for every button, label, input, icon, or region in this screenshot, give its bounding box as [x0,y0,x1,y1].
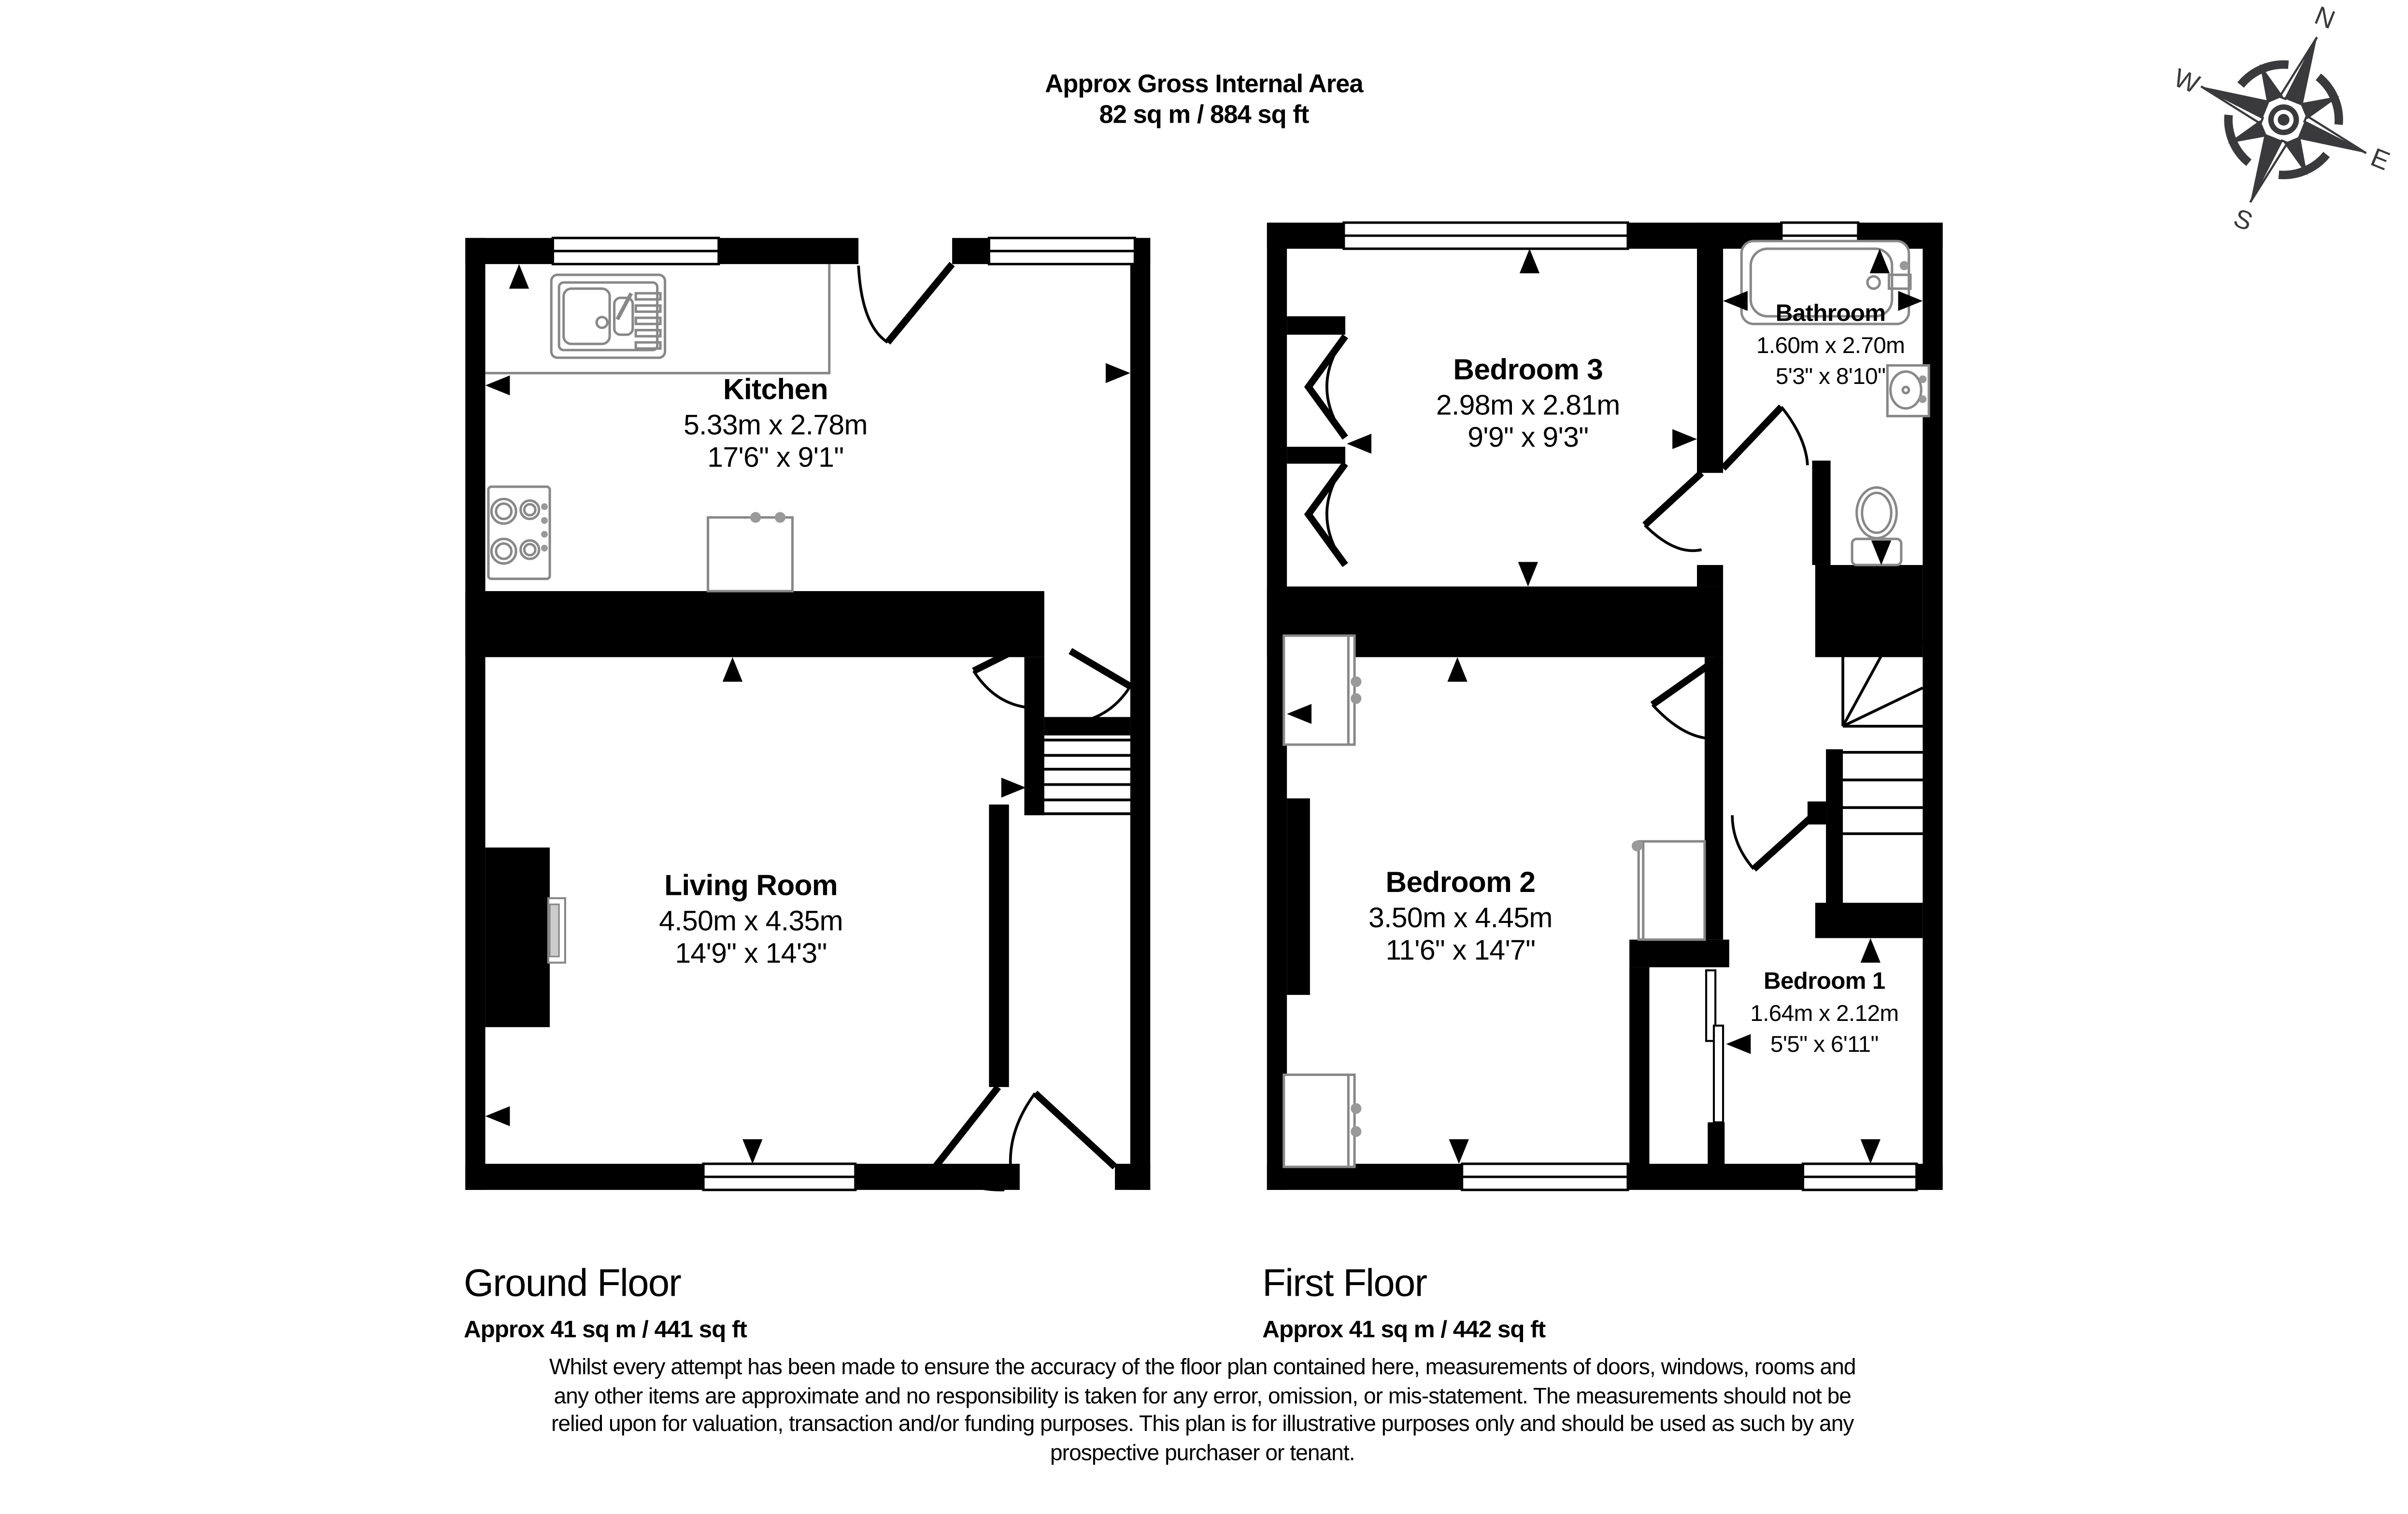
wall [1815,565,1923,657]
hob-icon [488,487,550,579]
disclaimer-line: Whilst every attempt has been made to en… [435,1354,1970,1383]
door-opening [858,237,952,266]
room-label-bathroom: Bathroom 1.60m x 2.70m 5'3" x 8'10" [1700,299,1961,394]
room-metric: 4.50m x 4.35m [567,904,935,936]
wardrobe-icon [1284,1075,1362,1167]
room-metric: 1.64m x 2.12m [1694,999,1955,1030]
compass-north-label: N [2310,1,2339,35]
wardrobe-icon [1284,636,1362,745]
wall [1130,238,1150,1190]
wall [1812,461,1830,565]
room-label-bedroom-3: Bedroom 3 2.98m x 2.81m 9'9" x 9'3" [1344,354,1712,453]
door [1011,1093,1115,1167]
door [1732,814,1815,869]
compass-rose-icon: N E S W [2129,0,2408,276]
measure-arrow-icon [1861,938,1881,962]
ground-floor-caption: Ground Floor Approx 41 sq m / 441 sq ft [464,1262,1109,1345]
floorplan-drawing: N E S W [0,0,2408,1514]
disclaimer-line: any other items are approximate and no r… [435,1383,1970,1411]
wall [1826,749,1843,938]
wall [1287,447,1345,464]
wall [1708,1122,1724,1170]
fireplace-icon [485,848,565,1027]
wall [1629,967,1649,1170]
wall [465,591,1044,657]
measure-arrow-icon [1520,249,1539,273]
kitchen-sink-icon [551,275,665,358]
measure-arrow-icon [1001,778,1026,797]
wall [1287,316,1345,335]
window [989,238,1135,264]
door [1723,407,1808,468]
first-floor-caption: First Floor Approx 41 sq m / 442 sq ft [1262,1262,1907,1345]
page-title: Approx Gross Internal Area 82 sq m / 884… [897,71,1511,130]
title-line-1: Approx Gross Internal Area [897,71,1511,100]
room-imperial: 5'3" x 8'10" [1700,362,1961,394]
room-imperial: 9'9" x 9'3" [1344,421,1712,453]
wall [1025,657,1044,815]
stairs [1843,642,1923,834]
measure-arrow-icon [742,1139,762,1164]
room-imperial: 17'6" x 9'1" [591,440,960,473]
room-label-bedroom-2: Bedroom 2 3.50m x 4.45m 11'6" x 14'7" [1276,867,1645,966]
compass-west-label: W [2170,63,2204,99]
window [703,1164,855,1190]
room-name: Bedroom 1 [1694,967,1955,999]
room-imperial: 11'6" x 14'7" [1276,934,1645,966]
room-label-bedroom-1: Bedroom 1 1.64m x 2.12m 5'5" x 6'11" [1694,967,1955,1062]
floor-area: Approx 41 sq m / 442 sq ft [1262,1317,1907,1345]
window [1344,223,1628,249]
room-name: Bedroom 3 [1344,354,1712,387]
room-label-kitchen: Kitchen 5.33m x 2.78m 17'6" x 9'1" [591,375,960,474]
measure-arrow-icon [509,264,529,289]
window [553,238,719,264]
room-imperial: 14'9" x 14'3" [567,936,935,969]
room-label-living-room: Living Room 4.50m x 4.35m 14'9" x 14'3" [567,871,935,970]
door [1070,651,1130,723]
stairs [1044,740,1130,814]
wall [1697,565,1723,587]
floor-area: Approx 41 sq m / 441 sq ft [464,1317,1109,1345]
disclaimer-line: relied upon for valuation, transaction a… [435,1411,1970,1440]
measure-arrow-icon [1518,562,1538,587]
room-metric: 3.50m x 4.45m [1276,901,1645,934]
floor-name: Ground Floor [464,1262,1109,1306]
room-name: Bedroom 2 [1276,867,1645,900]
room-name: Bathroom [1700,299,1961,331]
room-metric: 2.98m x 2.81m [1344,388,1712,421]
door [1645,473,1702,551]
measure-arrow-icon [485,1106,510,1126]
measure-arrow-icon [1449,1139,1469,1164]
room-name: Kitchen [591,375,960,408]
measure-arrow-icon [1106,363,1130,383]
room-metric: 5.33m x 2.78m [591,408,960,440]
wall [1705,657,1723,940]
window [1803,1164,1916,1190]
room-name: Living Room [567,871,935,904]
disclaimer: Whilst every attempt has been made to en… [435,1354,1970,1468]
floor-name: First Floor [1262,1262,1907,1306]
compass-east-label: E [2367,142,2394,176]
room-imperial: 5'5" x 6'11" [1694,1030,1955,1061]
measure-arrow-icon [485,375,510,395]
door [858,264,952,342]
title-line-2: 82 sq m / 884 sq ft [897,100,1511,130]
window [1462,1164,1628,1190]
floorplan-page: N E S W Approx Gross Internal Area 82 sq… [0,0,2408,1514]
measure-arrow-icon [723,657,742,682]
door-opening [1020,1162,1115,1191]
measure-arrow-icon [1861,1139,1881,1164]
disclaimer-line: prospective purchaser or tenant. [435,1440,1970,1468]
room-metric: 1.60m x 2.70m [1700,331,1961,362]
measure-arrow-icon [1447,657,1467,682]
wall [465,238,485,1190]
compass-south-label: S [2230,203,2257,237]
wall [989,805,1009,1087]
kitchen-unit-icon [708,512,793,591]
